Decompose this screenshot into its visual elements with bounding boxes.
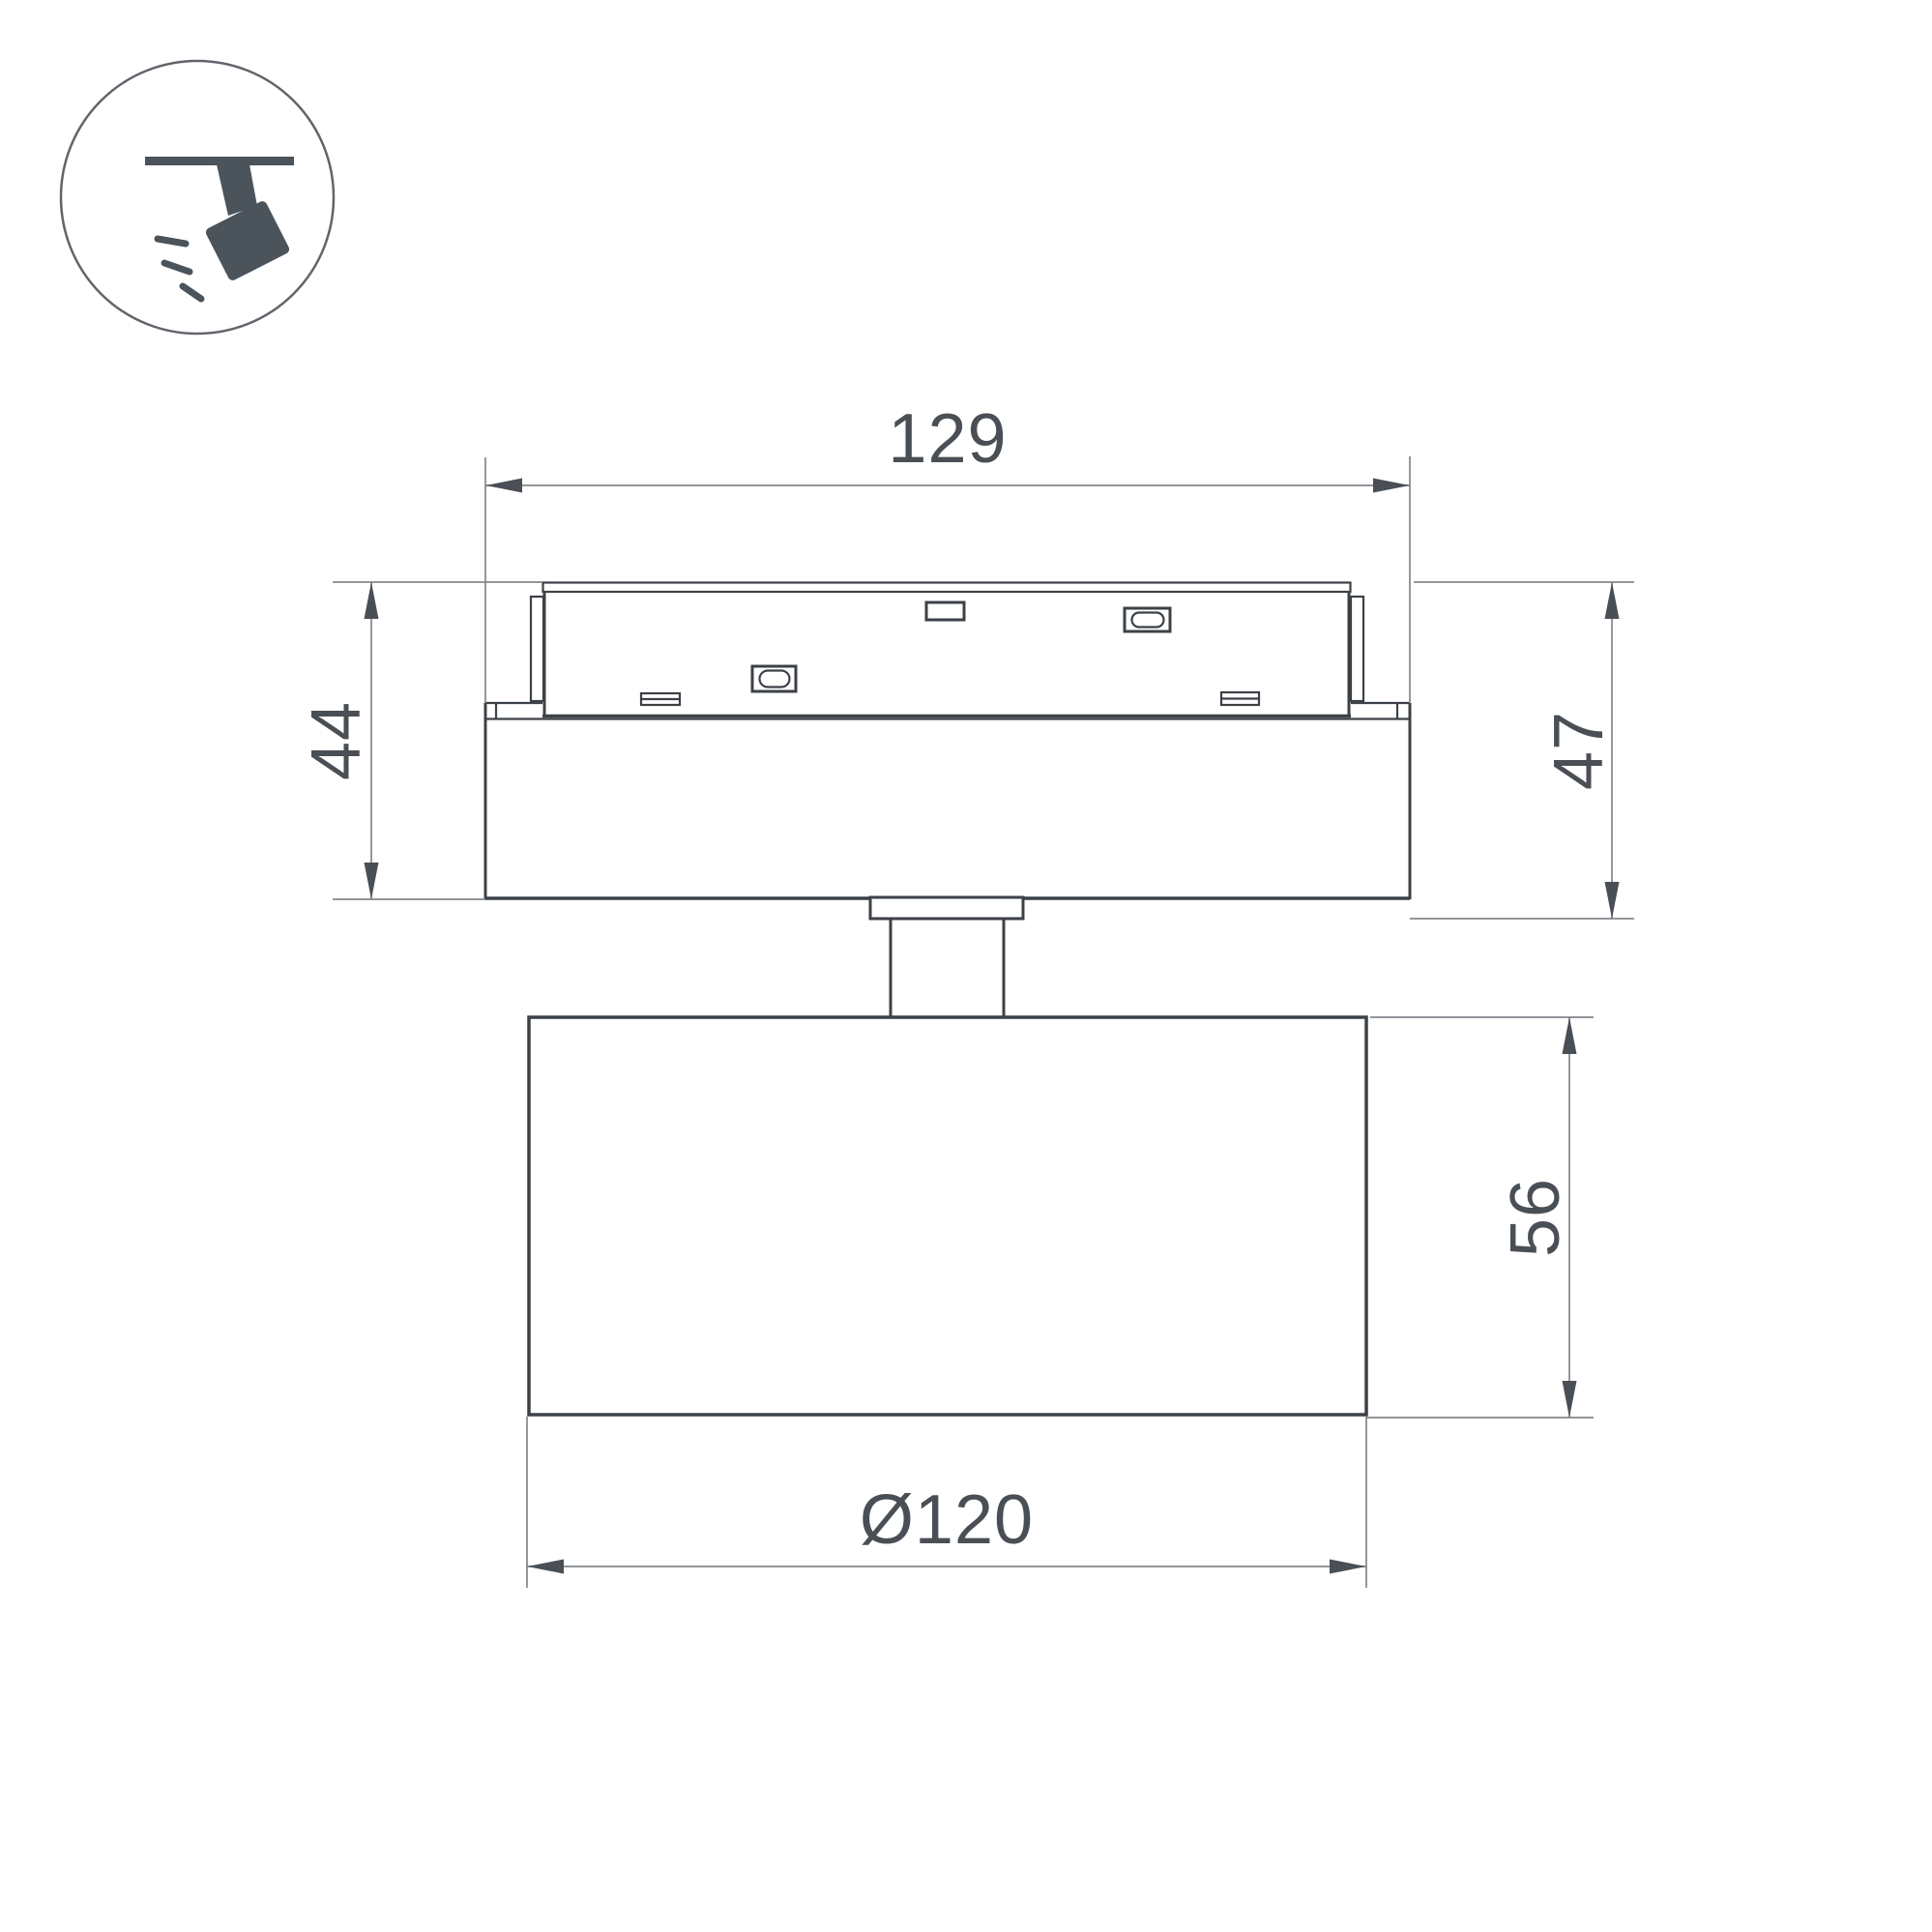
arrow-right	[1330, 1560, 1366, 1574]
arrow-left	[485, 479, 522, 493]
arrow-right	[1373, 479, 1410, 493]
adapter-slot	[926, 602, 964, 620]
dimension-track-length: 129	[485, 400, 1410, 703]
icon-light-ray	[158, 239, 186, 244]
icon-track-bar	[145, 157, 294, 165]
adapter-vent	[641, 693, 680, 705]
adapter-left-tab	[531, 597, 543, 701]
dimension-label-56: 56	[1497, 1178, 1574, 1257]
swivel-joint	[870, 897, 1023, 1018]
joint-collar	[870, 897, 1023, 919]
dimension-base-height: 47	[1410, 582, 1634, 919]
adapter-contact-button	[1125, 608, 1170, 631]
adapter-right-tab	[1351, 597, 1363, 701]
mount-housing	[485, 703, 1410, 899]
adapter-vent	[1221, 692, 1259, 705]
dimension-label-d120: Ø120	[860, 1481, 1034, 1559]
adapter-contact-button	[752, 666, 796, 691]
joint-stem	[891, 919, 1004, 1018]
dimension-adapter-height: 44	[298, 582, 542, 899]
lamp-head-cylinder	[529, 1017, 1366, 1415]
arrow-down	[1605, 882, 1620, 919]
dimension-label-129: 129	[888, 400, 1007, 478]
dimension-head-height: 56	[1366, 1017, 1594, 1418]
adapter-top-strip	[543, 583, 1351, 593]
arrow-up	[1605, 582, 1620, 619]
arrow-left	[527, 1560, 564, 1574]
arrow-down	[1563, 1381, 1577, 1418]
track-adapter	[531, 583, 1363, 717]
arrow-down	[365, 863, 379, 899]
technical-drawing: 129 44 47 56 Ø120	[0, 0, 1932, 1932]
dimension-head-diameter: Ø120	[527, 1417, 1366, 1588]
dimension-label-44: 44	[298, 701, 375, 780]
arrow-up	[365, 582, 379, 619]
track-spotlight-icon	[61, 61, 334, 334]
arrow-up	[1563, 1017, 1577, 1054]
drawing-canvas: 129 44 47 56 Ø120	[0, 0, 1932, 1932]
dimension-label-47: 47	[1540, 711, 1618, 790]
